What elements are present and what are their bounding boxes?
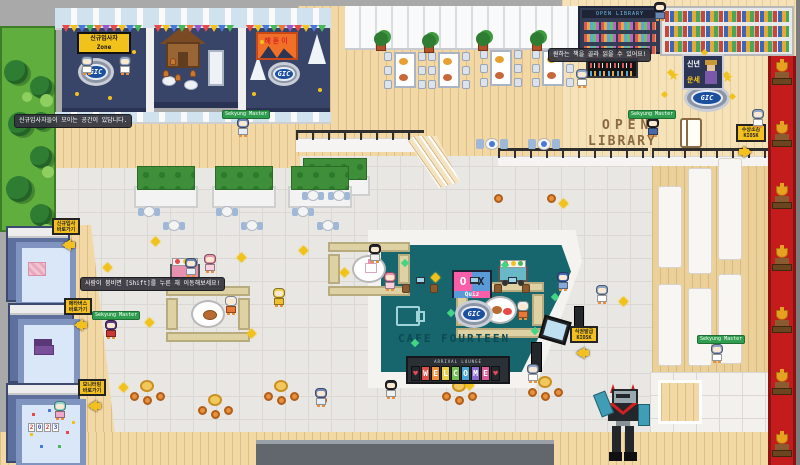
stool[interactable] xyxy=(541,392,550,401)
player-nametag: Sekyung Master xyxy=(222,110,270,119)
avatar-body xyxy=(370,254,380,261)
player-avatar[interactable] xyxy=(575,69,589,88)
player-avatar[interactable] xyxy=(751,109,765,128)
robot-leg xyxy=(625,426,634,453)
avatar-face xyxy=(56,404,64,409)
wall-opening xyxy=(658,380,702,424)
avatar-foot xyxy=(649,135,652,137)
meal-ticket-kiosk-sign[interactable]: 식권발급 KIOSK xyxy=(570,326,598,343)
trophy-icon xyxy=(776,248,788,258)
stool[interactable] xyxy=(494,194,503,203)
tooltip-crowd: 사람이 붐비면 [Shift]를 누른 채 이동해보세요! xyxy=(80,277,225,291)
chair xyxy=(566,64,574,73)
book-row xyxy=(584,22,656,30)
bistro-table xyxy=(322,220,334,231)
avatar-face xyxy=(83,59,91,64)
trophy-stand xyxy=(772,264,792,271)
avatar-foot xyxy=(244,135,247,137)
bench xyxy=(166,298,178,330)
picnic-blanket xyxy=(28,262,46,276)
food-plate xyxy=(547,72,556,79)
player-avatar[interactable] xyxy=(710,344,724,363)
stool[interactable] xyxy=(211,410,220,419)
stool[interactable] xyxy=(554,388,563,397)
book-row xyxy=(590,63,634,68)
player-avatar[interactable] xyxy=(653,2,667,21)
avatar-foot xyxy=(598,302,601,304)
giant-robot-npc[interactable] xyxy=(596,384,652,464)
avatar-foot xyxy=(583,86,586,88)
room-top-wall xyxy=(8,385,78,395)
avatar-face xyxy=(121,59,129,64)
avatar-foot xyxy=(376,261,379,263)
avatar-foot xyxy=(322,405,325,407)
bistro-table xyxy=(221,206,233,217)
counter-chair xyxy=(402,284,410,293)
chair xyxy=(418,80,426,89)
confetti-icon xyxy=(72,421,75,424)
chair xyxy=(476,139,484,149)
avatar-foot xyxy=(754,126,757,128)
laptop-screen xyxy=(417,278,424,282)
avatar-foot xyxy=(718,361,721,363)
avatar-face xyxy=(387,383,395,388)
avatar-face xyxy=(107,323,115,328)
avatar-foot xyxy=(759,126,762,128)
book-row xyxy=(665,26,789,37)
trophy-base xyxy=(775,444,789,450)
mezzanine-ledge xyxy=(296,138,424,152)
avatar-body xyxy=(753,119,763,126)
chair xyxy=(532,78,540,87)
shortcut-sign-2[interactable]: 메타버스 바로가기 xyxy=(64,298,92,315)
avatar-face xyxy=(371,247,379,252)
player-avatar[interactable] xyxy=(224,296,238,315)
trophy-stand xyxy=(772,78,792,85)
avatar-face xyxy=(227,299,235,304)
stool[interactable] xyxy=(143,396,152,405)
bleacher-panel xyxy=(688,288,712,366)
avatar-foot xyxy=(603,302,606,304)
dot-decor xyxy=(252,92,256,96)
stool-table xyxy=(538,376,552,388)
plant-foliage-icon xyxy=(374,32,388,46)
avatar-body xyxy=(655,12,665,19)
newbie-zone-sign-line1: 신규입사자 xyxy=(79,34,129,43)
fortune-sign[interactable]: 신년 운세 xyxy=(682,54,724,90)
robot-foot xyxy=(609,452,622,461)
player-avatar[interactable] xyxy=(314,388,328,407)
avatar-foot xyxy=(391,289,394,291)
player-avatar[interactable] xyxy=(383,272,397,291)
bistro-table xyxy=(307,190,319,201)
avatar-face xyxy=(559,275,567,280)
shortcut-sign-3[interactable]: 모니터링 바로가기 xyxy=(78,379,106,396)
shortcut-sign-1[interactable]: 신규입사 바로가기 xyxy=(52,218,80,235)
avatar-body xyxy=(577,79,587,86)
trophy-base xyxy=(775,134,789,140)
cart-item xyxy=(511,261,516,266)
kiosk-sign-line2: KIOSK xyxy=(576,335,591,341)
coffee-cup-floor-art xyxy=(396,306,420,326)
player-avatar[interactable] xyxy=(646,118,660,137)
mountain-graphic xyxy=(260,46,294,58)
bistro-table xyxy=(333,190,345,201)
bench xyxy=(328,286,410,296)
cart-item xyxy=(175,259,180,264)
avatar-foot xyxy=(559,289,562,291)
stool[interactable] xyxy=(442,392,451,401)
gic-logo: GIC xyxy=(461,306,487,323)
stool-table xyxy=(140,380,154,392)
stage-wall xyxy=(256,440,554,465)
avatar-foot xyxy=(206,271,209,273)
food-plate xyxy=(443,74,452,81)
tree-icon xyxy=(4,60,28,84)
fortune-sign-line2: 운세 xyxy=(687,75,700,85)
welcome-letter-tile: C xyxy=(451,366,460,381)
trophy-base xyxy=(775,72,789,78)
library-bookshelf-dark: OPEN LIBRARY xyxy=(578,6,662,54)
trophy-base xyxy=(775,196,789,202)
table-item xyxy=(489,141,495,147)
avatar-face xyxy=(317,391,325,396)
avatar-body xyxy=(385,282,395,289)
avatar-body xyxy=(558,282,568,289)
book-icon[interactable] xyxy=(680,118,702,148)
avatar-foot xyxy=(275,305,278,307)
avatar-foot xyxy=(317,405,320,407)
tree-icon xyxy=(30,146,52,168)
avatar-foot xyxy=(564,289,567,291)
robot-arm xyxy=(638,404,650,426)
dot-decor xyxy=(75,92,79,96)
stool[interactable] xyxy=(528,388,537,397)
map-right-edge xyxy=(796,0,800,465)
player-avatar[interactable] xyxy=(203,254,217,273)
bleacher-panel xyxy=(658,186,682,268)
avatar-face xyxy=(754,112,762,117)
stool[interactable] xyxy=(130,392,139,401)
booth-divider xyxy=(238,28,246,114)
player-avatar[interactable] xyxy=(516,301,530,320)
chair xyxy=(428,80,436,89)
welcome-letter-tile: ♥ xyxy=(411,366,420,381)
player-avatar[interactable] xyxy=(384,380,398,399)
year-digit: 3 xyxy=(52,423,59,432)
welcome-letter-tile: E xyxy=(481,366,490,381)
bush-icon xyxy=(22,92,32,102)
lodge-long-table xyxy=(208,50,224,86)
sunrise-banner: 해돋이 xyxy=(256,32,298,60)
avatar-face xyxy=(598,288,606,293)
sign-line2: 바로가기 xyxy=(69,307,87,313)
arrow-left-icon xyxy=(82,400,102,412)
player-nametag: Sekyung Master xyxy=(628,110,676,119)
portal-room-b[interactable] xyxy=(8,303,74,383)
chair xyxy=(514,50,522,59)
welcome-board-header: ARRIVAL LOUNGE xyxy=(408,359,508,364)
ox-quiz-sign[interactable]: O X Quiz xyxy=(452,270,492,298)
trophy-icon xyxy=(780,431,784,435)
dot-decor xyxy=(108,96,112,100)
avatar-foot xyxy=(661,19,664,21)
counter-chair xyxy=(522,284,530,293)
plant-foliage-icon xyxy=(530,32,544,46)
food-plate xyxy=(495,56,504,63)
portal-room-party[interactable]: 2023 xyxy=(6,383,80,463)
stool[interactable] xyxy=(290,392,299,401)
trophy-icon xyxy=(780,121,784,125)
trophy-stand xyxy=(772,450,792,457)
counter-chair xyxy=(494,284,502,293)
railing xyxy=(296,130,424,140)
stool[interactable] xyxy=(264,392,273,401)
trophy-icon xyxy=(776,186,788,196)
confetti-icon xyxy=(66,431,69,434)
library-bookshelf-color xyxy=(660,6,794,56)
trophy-stand xyxy=(772,202,792,209)
chair xyxy=(552,139,560,149)
robot-visor xyxy=(616,394,630,398)
trophy-icon xyxy=(776,310,788,320)
avatar-face xyxy=(239,121,247,126)
stool[interactable] xyxy=(547,194,556,203)
laptop-screen xyxy=(471,278,478,282)
year-2023-tiles: 2023 xyxy=(28,423,59,432)
avatar-foot xyxy=(121,73,124,75)
player-avatar[interactable] xyxy=(80,56,94,75)
trophy-icon xyxy=(780,307,784,311)
stool[interactable] xyxy=(198,406,207,415)
bench xyxy=(166,332,250,342)
player-avatar[interactable] xyxy=(118,56,132,75)
robot-leg xyxy=(612,426,621,453)
avatar-foot xyxy=(713,361,716,363)
chair xyxy=(384,52,392,61)
booth-divider xyxy=(146,28,154,114)
confetti-icon xyxy=(40,445,43,448)
dot-decor xyxy=(318,88,322,92)
chair xyxy=(480,64,488,73)
trophy-icon xyxy=(776,372,788,382)
avatar-body xyxy=(386,390,396,397)
plant-foliage-icon xyxy=(476,32,490,46)
tv-display xyxy=(543,320,567,341)
player-avatar[interactable] xyxy=(556,272,570,291)
food-plate xyxy=(495,72,504,79)
confetti-icon xyxy=(32,413,35,416)
stool[interactable] xyxy=(455,396,464,405)
chair xyxy=(514,78,522,87)
bistro-table xyxy=(297,206,309,217)
dot-decor xyxy=(260,40,264,44)
gingerbread-icon xyxy=(163,70,169,77)
player-avatar[interactable] xyxy=(595,285,609,304)
book-row xyxy=(584,34,656,42)
chair xyxy=(528,139,536,149)
avatar-body xyxy=(274,298,284,305)
welcome-board: ARRIVAL LOUNGE ♥WELCOME♥ xyxy=(406,356,510,384)
avatar-face xyxy=(529,367,537,372)
trophy-icon xyxy=(780,245,784,249)
welcome-letter-tiles: ♥WELCOME♥ xyxy=(411,366,507,382)
avatar-face xyxy=(519,304,527,309)
player-avatar[interactable] xyxy=(104,320,118,339)
hedge xyxy=(215,166,273,190)
avatar-body xyxy=(518,311,528,318)
hedge xyxy=(137,166,195,190)
cake-icon xyxy=(365,263,377,273)
stool[interactable] xyxy=(468,392,477,401)
stool[interactable] xyxy=(156,392,165,401)
chair xyxy=(428,52,436,61)
tree-icon xyxy=(6,176,32,202)
portal-room-a[interactable] xyxy=(6,226,70,302)
trophy-stand xyxy=(772,326,792,333)
player-avatar[interactable] xyxy=(236,118,250,137)
player-avatar[interactable] xyxy=(184,258,198,277)
year-digit: 2 xyxy=(28,423,35,432)
year-digit: 0 xyxy=(36,423,43,432)
tree-icon xyxy=(30,204,52,226)
lodge-door xyxy=(178,52,188,66)
avatar-body xyxy=(648,128,658,135)
chair xyxy=(532,64,540,73)
bush-icon xyxy=(42,166,54,178)
avatar-foot xyxy=(239,135,242,137)
avatar-foot xyxy=(519,318,522,320)
gic-logo: GIC xyxy=(273,67,295,81)
avatar-face xyxy=(713,347,721,352)
avatar-foot xyxy=(654,135,657,137)
avatar-face xyxy=(656,5,664,10)
chair xyxy=(418,52,426,61)
chair xyxy=(462,66,470,75)
cart-item xyxy=(518,261,523,266)
gic-logo-rug: GIC xyxy=(268,62,300,86)
bench xyxy=(238,298,250,330)
avatar-body xyxy=(205,264,215,271)
chair xyxy=(418,66,426,75)
trophy-stand xyxy=(772,140,792,147)
avatar-foot xyxy=(578,86,581,88)
table-item xyxy=(541,141,547,147)
arrow-left-icon xyxy=(68,319,88,331)
chair xyxy=(532,50,540,59)
stool-table xyxy=(274,380,288,392)
fortune-teller-npc[interactable] xyxy=(704,60,718,86)
robot-foot xyxy=(624,452,637,461)
book-spine xyxy=(686,120,688,146)
sign-line2: 바로가기 xyxy=(57,227,75,233)
avatar-body xyxy=(186,268,196,275)
arrow-left-icon xyxy=(570,347,590,359)
picnic-table xyxy=(191,300,225,328)
avatar-foot xyxy=(232,313,235,315)
hedge xyxy=(291,166,349,190)
trophy-base xyxy=(775,320,789,326)
fortune-sign-line1: 신년 xyxy=(687,59,700,69)
avatar-body xyxy=(316,398,326,405)
tooltip-newbie: 신규입사자들이 모이는 공간이 있답니다. xyxy=(14,114,132,128)
bistro-table xyxy=(168,220,180,231)
player-nametag: Sekyung Master xyxy=(92,311,140,320)
trophy-icon xyxy=(780,183,784,187)
avatar-foot xyxy=(387,397,390,399)
avatar-body xyxy=(238,128,248,135)
avatar-foot xyxy=(83,73,86,75)
avatar-foot xyxy=(61,418,64,420)
player-nametag: Sekyung Master xyxy=(697,335,745,344)
chair xyxy=(384,80,392,89)
lodge-round-table xyxy=(162,76,176,86)
food-plate xyxy=(399,74,408,81)
bush-icon xyxy=(40,94,53,107)
player-avatar[interactable] xyxy=(526,364,540,383)
avatar-foot xyxy=(656,19,659,21)
avatar-foot xyxy=(524,318,527,320)
food-icon xyxy=(503,308,512,315)
avatar-body xyxy=(106,330,116,337)
cup-handle xyxy=(416,311,425,322)
roast-food-icon xyxy=(203,310,217,320)
avatar-foot xyxy=(392,397,395,399)
welcome-letter-tile: E xyxy=(431,366,440,381)
gic-logo: GIC xyxy=(691,90,722,107)
avatar-foot xyxy=(112,337,115,339)
trophy-icon xyxy=(780,59,784,63)
trophy-base xyxy=(775,258,789,264)
laptop-screen xyxy=(509,278,516,282)
kiosk-sign-line2: KIOSK xyxy=(743,133,758,139)
bleacher-panel xyxy=(658,284,682,366)
chair xyxy=(462,52,470,61)
player-avatar[interactable] xyxy=(53,401,67,420)
newbie-zone-sign[interactable]: 신규입사자 Zone xyxy=(77,32,131,54)
avatar-foot xyxy=(211,271,214,273)
plant-foliage-icon xyxy=(422,34,436,48)
food-icon xyxy=(492,306,502,314)
chair xyxy=(462,80,470,89)
stool[interactable] xyxy=(277,396,286,405)
avatar-foot xyxy=(107,337,110,339)
avatar-foot xyxy=(386,289,389,291)
avatar-foot xyxy=(371,261,374,263)
avatar-face xyxy=(578,72,586,77)
stool[interactable] xyxy=(224,406,233,415)
railing xyxy=(498,148,648,158)
stool-table xyxy=(208,394,222,406)
sofa xyxy=(34,345,54,355)
avatar-body xyxy=(82,66,92,73)
player-avatar[interactable] xyxy=(272,288,286,307)
arrow-right-icon xyxy=(738,146,758,158)
avatar-body xyxy=(55,411,65,418)
year-digit: 2 xyxy=(44,423,51,432)
gingerbread-icon xyxy=(190,70,196,77)
wizard-robe xyxy=(705,71,717,84)
gingerbread-icon xyxy=(175,74,181,81)
chair xyxy=(514,64,522,73)
welcome-letter-tile: O xyxy=(461,366,470,381)
avatar-face xyxy=(649,121,657,126)
metaverse-map: 신규입사자 Zone GIC 해돋이 GIC OPEN LIBRARY xyxy=(0,0,800,465)
newbie-zone-sign-line2: Zone xyxy=(79,43,129,52)
avatar-foot xyxy=(88,73,91,75)
welcome-letter-tile: ♥ xyxy=(491,366,500,381)
player-avatar[interactable] xyxy=(368,244,382,263)
